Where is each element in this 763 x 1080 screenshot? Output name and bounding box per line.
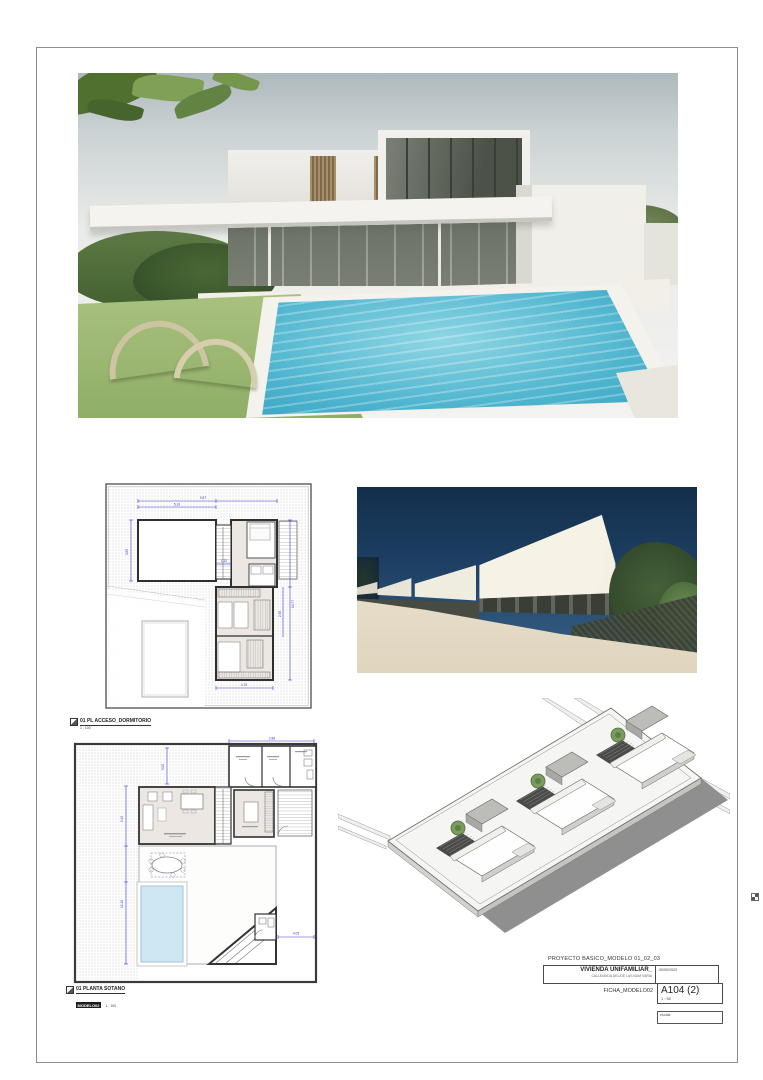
svg-text:5.10: 5.10 [174,503,180,507]
registration-mark-icon [751,893,759,901]
view-reference-icon [70,718,78,726]
project-title: PROYECTO BASICO_MODELO 01_02_03 [548,956,654,962]
column [268,222,271,286]
bedroom-top-right [247,522,275,558]
tree-silhouette [357,557,379,602]
paving-corner [616,365,678,418]
model-badge: MODELO02 [76,1002,101,1008]
axonometric-view [338,698,730,938]
upper-glass-volume [378,130,530,204]
basement-plan-label: 01 PLANTA SOTANO MODELO02 1 : 100 [66,986,125,1012]
glass-facade [386,138,522,200]
svg-text:4.05: 4.05 [293,932,299,936]
access-plan-label: 01 PL ACCESO_DORMITORIO 1 : 100 [70,718,151,730]
boundary-wall [644,223,678,285]
exterior-render [78,73,678,418]
water-ripples [258,290,668,416]
bedroom [234,790,274,837]
sheet-number-box: A104 (2) 1 : 50 [657,983,723,1004]
view-scale: 1 : 100 [105,1004,116,1008]
pool-water [258,290,668,416]
svg-text:5.00: 5.00 [161,764,165,770]
date-cell: 00/00/2023 [657,967,718,973]
svg-text:4.75: 4.75 [241,683,247,687]
living-room [139,787,215,844]
view-reference-icon [66,986,74,994]
view-title: 01 PL ACCESO_DORMITORIO [80,718,151,726]
project-address: CALLE/AVDA DEL/DE LAS NUM VARIA [544,974,652,978]
stair-core [216,525,231,579]
svg-text:10.77: 10.77 [291,600,295,608]
svg-text:12.10: 12.10 [120,900,124,908]
sheet-number: A104 (2) [661,985,719,996]
title-block-footer: escala [657,1011,723,1024]
title-block-main: VIVIENDA UNIFAMILIAR_ CALLE/AVDA DEL/DE … [543,965,719,984]
glass-panes [228,222,518,286]
svg-text:2.98: 2.98 [278,611,282,617]
upper-volume [228,150,390,203]
svg-text:2.88: 2.88 [269,737,275,741]
access-floor-plan: 9.87 5.10 3.85 10.77 2.98 4.75 1.32 [97,474,319,716]
street-render [357,487,697,673]
svg-text:9.87: 9.87 [200,496,206,500]
mullions [386,138,522,200]
terrace-pool [137,882,187,966]
drawing-sheet: 9.87 5.10 3.85 10.77 2.98 4.75 1.32 01 P… [0,0,763,1080]
project-name: VIVIENDA UNIFAMILIAR_ [544,966,652,974]
pool-outline [142,621,188,697]
sheet-name: FICHA_MODELO02 [540,988,653,994]
svg-text:1.32: 1.32 [221,559,227,563]
sheet-scale: 1 : 50 [661,996,719,1001]
wood-slats [310,156,336,203]
view-scale: 1 : 100 [80,726,151,730]
view-title: 01 PLANTA SOTANO [76,986,125,994]
column [438,222,441,286]
bathroom [249,564,275,586]
basement-floor-plan: 12.10 3.45 2.88 5.00 4.05 [64,734,332,992]
stair-core [215,787,231,844]
project-name-cell: VIVIENDA UNIFAMILIAR_ CALLE/AVDA DEL/DE … [544,966,656,983]
service-rooms [229,746,316,787]
svg-text:3.85: 3.85 [125,549,129,555]
exterior-stair [279,521,297,579]
svg-text:3.45: 3.45 [120,816,124,822]
ground-floor-glazing [228,222,518,286]
exterior-stair [278,790,312,836]
